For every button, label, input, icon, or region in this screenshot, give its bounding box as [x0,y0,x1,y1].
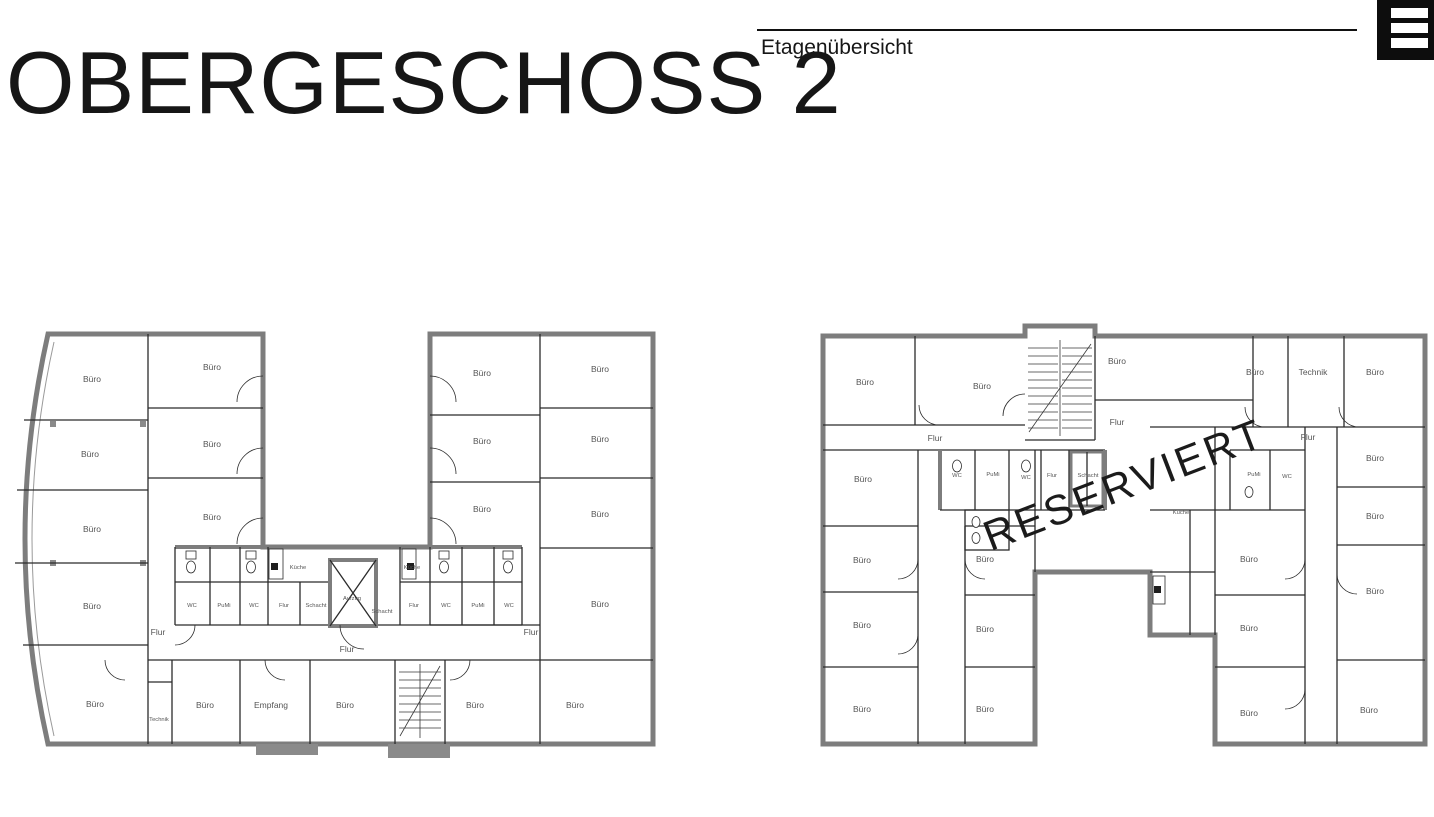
room-label: Technik [149,717,169,723]
room-label: PuMi [217,603,230,609]
room-label: Büro [1240,708,1258,718]
room-label: Flur [928,433,943,443]
room-label: Büro [853,555,871,565]
room-label: Büro [203,439,221,449]
room-label: Technik [1299,367,1329,377]
room-label: Schacht [372,609,393,615]
room-label: Büro [976,704,994,714]
room-label: Büro [973,381,991,391]
room-label: WC [1282,474,1292,480]
room-label: Büro [856,377,874,387]
room-label: Büro [336,700,354,710]
room-label: Büro [203,512,221,522]
building-outline [823,326,1425,744]
floor-plan-right-drawing: BüroBüroBüroFlurBüroTechnikBüroFlurFlurB… [819,324,1429,749]
room-label: Küche [404,565,420,571]
room-label: Büro [1246,367,1264,377]
room-label: Flur [1301,432,1316,442]
room-label: Empfang [254,700,288,710]
room-label: Büro [83,601,101,611]
company-logo-icon [1377,0,1434,60]
room-label: Büro [591,509,609,519]
room-label: Flur [340,644,355,654]
room-label: Büro [81,449,99,459]
room-label: WC [249,603,259,609]
room-label: Büro [473,368,491,378]
room-label: Büro [591,599,609,609]
elevator [330,560,376,626]
floor-plan-right: BüroBüroBüroFlurBüroTechnikBüroFlurFlurB… [819,324,1429,749]
room-label: WC [504,603,514,609]
room-label: Flur [524,627,539,637]
room-label: Büro [853,620,871,630]
room-label: Büro [1366,367,1384,377]
room-label: Büro [1366,511,1384,521]
room-label: Küche [1173,510,1189,516]
page-subtitle: Etagenübersicht [761,36,913,60]
room-label: Büro [1108,356,1126,366]
room-label: Büro [203,362,221,372]
room-label: Büro [473,504,491,514]
room-label: Büro [83,374,101,384]
room-label: Büro [591,364,609,374]
room-label: Aufzug [343,596,361,602]
room-label: Büro [853,704,871,714]
room-label: Küche [290,565,306,571]
room-label: Büro [1366,586,1384,596]
room-label: Büro [86,699,104,709]
room-label: WC [952,473,962,479]
room-label: Büro [976,624,994,634]
room-label: PuMi [471,603,484,609]
room-label: WC [441,603,451,609]
room-label: Flur [409,603,419,609]
page-title: OBERGESCHOSS 2 [6,39,842,127]
room-label: Schacht [306,603,327,609]
room-label: Büro [591,434,609,444]
room-label: Büro [196,700,214,710]
room-label: PuMi [1247,472,1260,478]
header-rule [757,29,1357,31]
room-label: Flur [1110,417,1125,427]
floor-plan-left: BüroBüroBüroBüroBüroBüroBüroBüroWCPuMiWC… [10,320,665,765]
room-label: Büro [854,474,872,484]
room-label: Büro [1360,705,1378,715]
room-label: Büro [566,700,584,710]
floor-plan-page: OBERGESCHOSS 2 Etagenübersicht [0,0,1434,817]
room-label: Büro [83,524,101,534]
room-label: Büro [466,700,484,710]
room-label: Büro [1366,453,1384,463]
room-label: Büro [1240,554,1258,564]
room-label: Flur [1047,473,1057,479]
room-label: Flur [279,603,289,609]
room-label: PuMi [986,472,999,478]
room-label: WC [1021,475,1031,481]
room-label: Büro [1240,623,1258,633]
room-label: Büro [473,436,491,446]
room-label: Flur [151,627,166,637]
room-label: WC [187,603,197,609]
floor-plan-left-drawing: BüroBüroBüroBüroBüroBüroBüroBüroWCPuMiWC… [10,320,665,765]
